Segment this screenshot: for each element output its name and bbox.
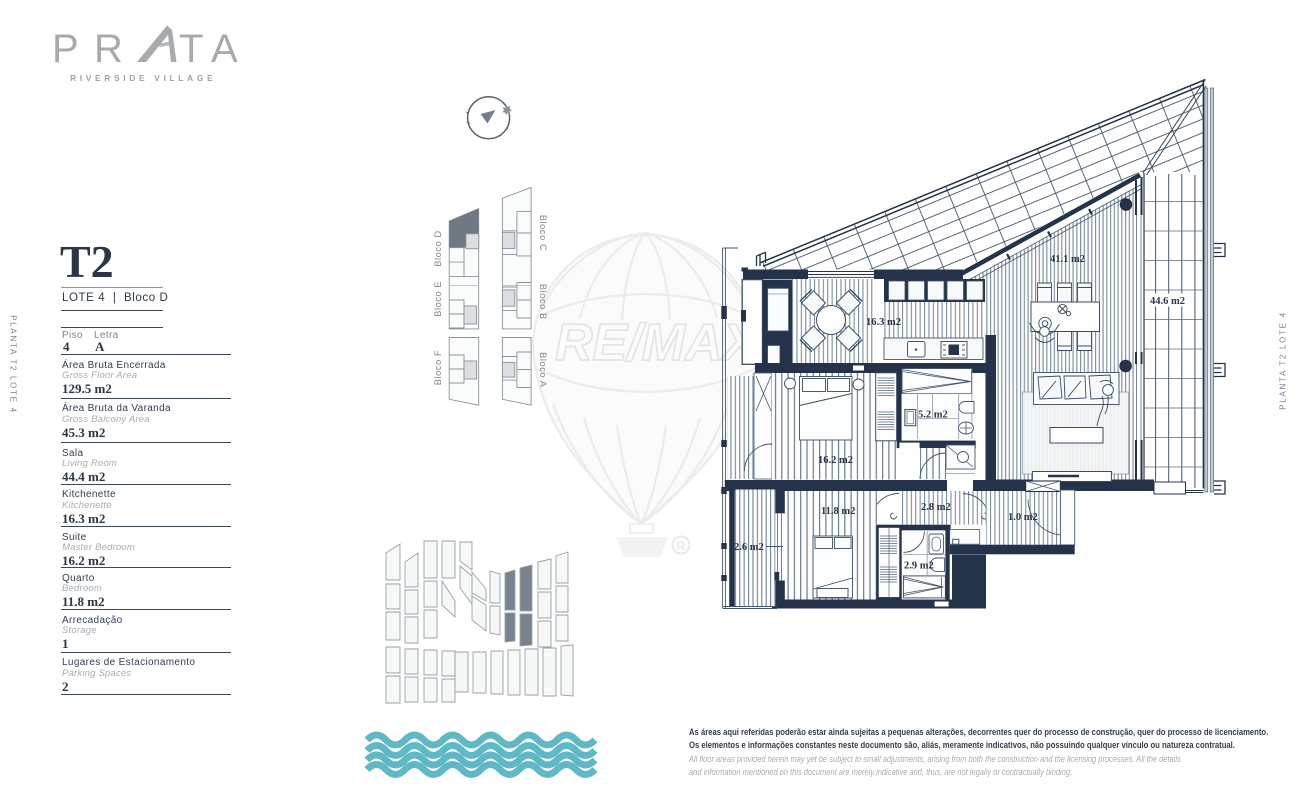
svg-text:Bloco A: Bloco A — [538, 352, 548, 388]
svg-text:41.1 m2: 41.1 m2 — [1050, 254, 1085, 265]
svg-text:P: P — [52, 27, 79, 71]
svg-text:R: R — [94, 27, 123, 71]
svg-text:RE/MAX: RE/MAX — [555, 314, 761, 372]
svg-text:5.2 m2: 5.2 m2 — [918, 410, 948, 421]
svg-text:RIVERSIDE VILLAGE: RIVERSIDE VILLAGE — [70, 73, 216, 83]
svg-text:2.6 m2: 2.6 m2 — [734, 542, 764, 553]
svg-text:Bloco E: Bloco E — [433, 281, 443, 317]
svg-text:Bloco C: Bloco C — [538, 215, 548, 251]
svg-text:2.8 m2: 2.8 m2 — [921, 502, 951, 513]
svg-text:Bloco B: Bloco B — [538, 284, 548, 320]
svg-text:Bloco F: Bloco F — [433, 350, 443, 385]
svg-text:1.0 m2: 1.0 m2 — [1008, 512, 1038, 523]
svg-text:2.9 m2: 2.9 m2 — [904, 561, 934, 572]
svg-text:A: A — [211, 27, 238, 71]
svg-text:16.3 m2: 16.3 m2 — [866, 317, 901, 328]
svg-text:T: T — [179, 27, 203, 71]
svg-text:11.8 m2: 11.8 m2 — [821, 506, 855, 517]
svg-text:R: R — [677, 539, 686, 553]
svg-text:Bloco D: Bloco D — [433, 230, 443, 266]
svg-text:44.6 m2: 44.6 m2 — [1150, 296, 1185, 307]
svg-text:16.2 m2: 16.2 m2 — [818, 455, 853, 466]
